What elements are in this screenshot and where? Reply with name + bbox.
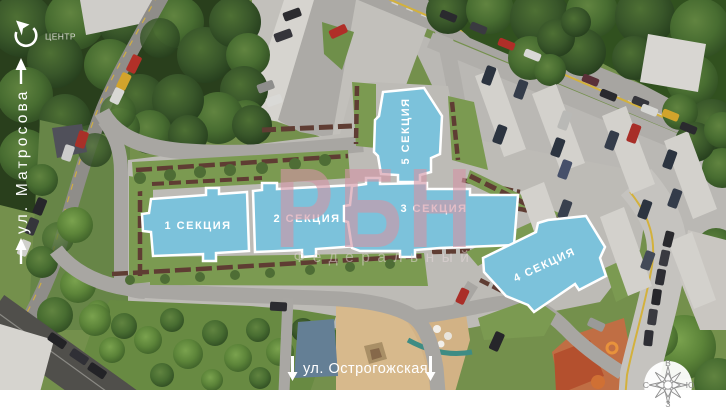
svg-text:С: С [643,380,649,390]
svg-text:ЦЕНТР: ЦЕНТР [45,32,76,42]
svg-text:Федеральный: Федеральный [294,249,477,266]
svg-text:В: В [665,358,671,368]
svg-text:1 СЕКЦИЯ: 1 СЕКЦИЯ [164,220,231,232]
svg-text:Ю: Ю [686,380,695,390]
svg-text:ул. Острогожская: ул. Острогожская [303,361,428,377]
svg-text:З: З [665,399,670,409]
svg-text:ул. Матросова: ул. Матросова [14,88,31,234]
